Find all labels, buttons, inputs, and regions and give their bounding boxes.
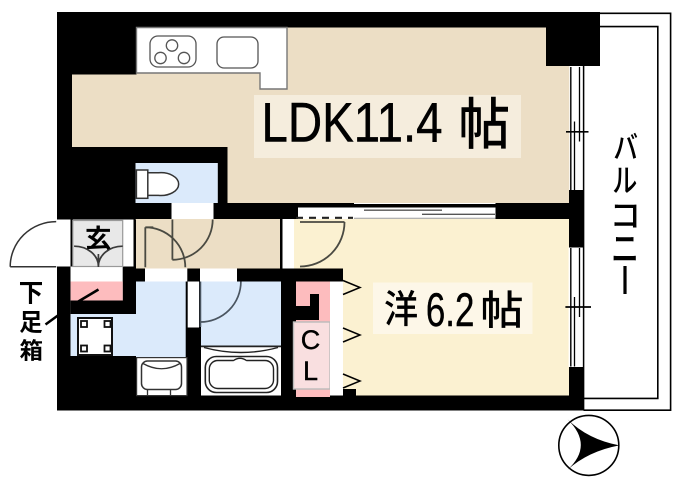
svg-text:C: C (301, 325, 321, 355)
svg-text:LDK11.4: LDK11.4 (262, 92, 443, 154)
svg-text:6.2: 6.2 (426, 284, 475, 337)
svg-text:L: L (303, 356, 318, 386)
